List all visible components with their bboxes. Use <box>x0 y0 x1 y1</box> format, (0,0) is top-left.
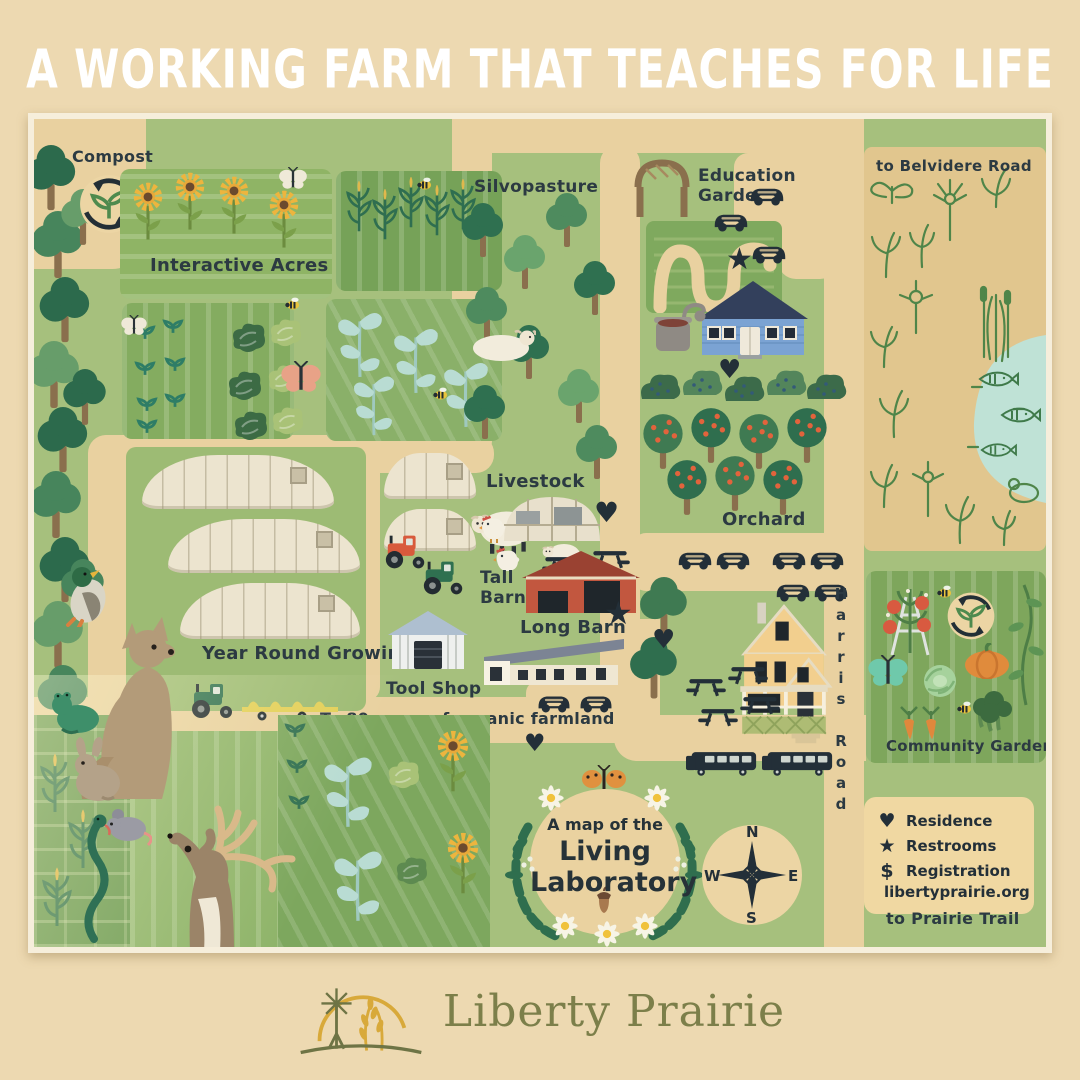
car-icon <box>748 239 790 266</box>
car-icon <box>768 545 810 572</box>
tree <box>62 369 108 429</box>
legend-website-label: libertyprairie.org <box>884 883 1030 901</box>
badge-line1: A map of the <box>530 815 680 834</box>
berry-bush <box>680 367 724 399</box>
blue-plant <box>320 751 376 829</box>
legend-restrooms-label: Restrooms <box>906 837 996 855</box>
corn-plant <box>346 181 372 233</box>
prairie-line-art <box>864 147 1046 551</box>
map-frame: Compost Interactive Acres Year Round Gro… <box>28 113 1052 953</box>
dollar-icon: $ <box>876 860 898 882</box>
sprout <box>162 319 184 334</box>
sprout <box>286 759 308 774</box>
chicken <box>478 513 508 545</box>
tree <box>34 471 84 543</box>
map-legend: ♥Residence ★Restrooms $Registration libe… <box>864 797 1034 914</box>
kale-plant <box>226 369 262 403</box>
tall-barn-label: TallBarn <box>480 569 526 608</box>
community-garden-label: Community Garden <box>886 737 1046 755</box>
picnic-table-icon <box>728 663 768 688</box>
legend-registration-label: Registration <box>906 862 1011 880</box>
prairie-trail-label: to Prairie Trail <box>886 909 1020 928</box>
sunflower <box>174 171 206 233</box>
footer: Liberty Prairie <box>0 962 1080 1060</box>
berry-bush <box>638 371 682 403</box>
restroom-star-marker: ★ <box>726 245 753 275</box>
compass-west: W <box>704 867 721 885</box>
orchard-tree <box>664 457 710 519</box>
kale-plant <box>230 321 266 355</box>
compass-south: S <box>746 909 757 927</box>
brand-name: Liberty Prairie <box>443 986 785 1037</box>
harris-road-label: Harris Road <box>832 585 850 815</box>
tree <box>556 369 602 427</box>
legend-residence-row: ♥Residence <box>876 810 1022 832</box>
sunflower <box>436 729 470 795</box>
leafy-plant <box>394 855 428 887</box>
blue-plant <box>330 845 386 923</box>
corn-plant <box>40 753 70 815</box>
pumpkin <box>962 643 1012 679</box>
blue-plant <box>334 307 386 379</box>
map-title-badge: A map of the Living Laboratory <box>498 765 710 947</box>
sprout <box>134 361 156 376</box>
car-icon <box>806 545 848 572</box>
tall-barn-line2: Barn <box>480 589 526 609</box>
butterfly-icon <box>120 315 148 337</box>
compass: N E S W <box>702 825 802 925</box>
legend-residence-label: Residence <box>906 812 992 830</box>
tall-barn-line1: Tall <box>480 569 526 589</box>
deer <box>130 801 300 947</box>
car-icon <box>534 689 574 715</box>
tree <box>460 203 506 261</box>
bee-icon <box>432 387 450 401</box>
sunflower <box>218 175 250 237</box>
car-icon <box>674 545 716 572</box>
lettuce-plant <box>270 405 304 437</box>
car-icon <box>746 181 788 208</box>
belvidere-road-label: to Belvidere Road <box>876 157 1032 175</box>
sprout <box>136 419 158 434</box>
road-top <box>452 119 856 153</box>
compass-east: E <box>788 867 798 885</box>
bee-icon <box>936 585 954 599</box>
liberty-prairie-logo <box>295 962 427 1060</box>
berry-bush <box>764 367 808 399</box>
bee-icon <box>284 297 302 311</box>
year-round-growing-label: Year Round Growing <box>202 643 414 664</box>
tool-shop-label: Tool Shop <box>386 679 481 699</box>
sprout <box>136 397 158 412</box>
sunflower <box>268 189 300 251</box>
pea-vine <box>1006 579 1046 709</box>
tree <box>572 261 618 319</box>
badge-text: A map of the Living Laboratory <box>530 815 680 898</box>
berry-bush <box>722 373 766 405</box>
tree <box>544 193 590 251</box>
sunflower <box>132 181 164 243</box>
kale-plant <box>232 409 268 443</box>
sprout <box>164 357 186 372</box>
corn-plant <box>42 867 72 929</box>
sheep-lying <box>472 323 536 363</box>
tree <box>38 277 92 347</box>
residence-heart-marker: ♥ <box>652 627 675 653</box>
bee-icon <box>956 701 974 715</box>
tractor-green <box>420 559 468 597</box>
residence-heart-marker: ♥ <box>524 731 546 755</box>
picnic-table-icon <box>698 705 738 730</box>
livestock-coop <box>502 491 602 543</box>
corn-plant <box>372 189 398 241</box>
rabbit <box>68 735 132 805</box>
leafy-plant <box>386 759 420 791</box>
cabbage <box>920 663 960 699</box>
arbor-icon <box>632 157 692 229</box>
badge-line2: Living <box>530 836 680 867</box>
sprout <box>164 393 186 408</box>
livestock-label: Livestock <box>486 471 585 492</box>
page: { "title": "A WORKING FARM THAT TEACHES … <box>0 0 1080 1080</box>
snake <box>78 813 112 943</box>
tree <box>502 235 548 293</box>
picnic-table-icon <box>686 675 726 700</box>
picnic-table-icon <box>740 693 780 718</box>
tomato-trellis <box>878 579 942 659</box>
butterfly-icon <box>278 167 308 191</box>
lettuce-plant <box>268 317 302 349</box>
butterfly-icon <box>866 655 910 689</box>
heart-icon: ♥ <box>876 810 898 832</box>
map-canvas: Compost Interactive Acres Year Round Gro… <box>34 119 1046 947</box>
residence-heart-marker: ♥ <box>594 499 619 527</box>
tool-shop-building <box>388 611 468 673</box>
interactive-acres-label: Interactive Acres <box>150 255 329 276</box>
compost-label: Compost <box>72 147 153 166</box>
badge-line3: Laboratory <box>530 867 680 898</box>
education-center-building <box>696 277 810 361</box>
tree <box>462 385 508 443</box>
sprout <box>284 723 306 738</box>
star-icon: ★ <box>876 835 898 857</box>
soup-pot-icon <box>654 299 706 357</box>
car-icon <box>712 545 754 572</box>
sunflower <box>446 831 480 897</box>
orchard-label: Orchard <box>722 509 806 530</box>
long-barn-label: Long Barn <box>520 617 626 638</box>
butterfly-icon <box>280 361 322 395</box>
legend-registration-row: $Registration <box>876 860 1022 882</box>
orchard-tree <box>712 453 758 515</box>
long-barn-building <box>484 637 624 687</box>
corn-plant <box>424 185 450 237</box>
compass-north: N <box>746 823 759 841</box>
car-icon <box>576 689 616 715</box>
page-title: A WORKING FARM THAT TEACHES FOR LIFE <box>0 38 1080 100</box>
legend-website-row: libertyprairie.org <box>876 883 1022 901</box>
blue-plant <box>350 371 398 437</box>
legend-restrooms-row: ★Restrooms <box>876 835 1022 857</box>
carrots <box>892 697 948 741</box>
berry-bush <box>804 371 848 403</box>
car-icon <box>710 207 752 234</box>
school-bus-icon <box>762 747 834 778</box>
bee-icon <box>416 177 434 191</box>
